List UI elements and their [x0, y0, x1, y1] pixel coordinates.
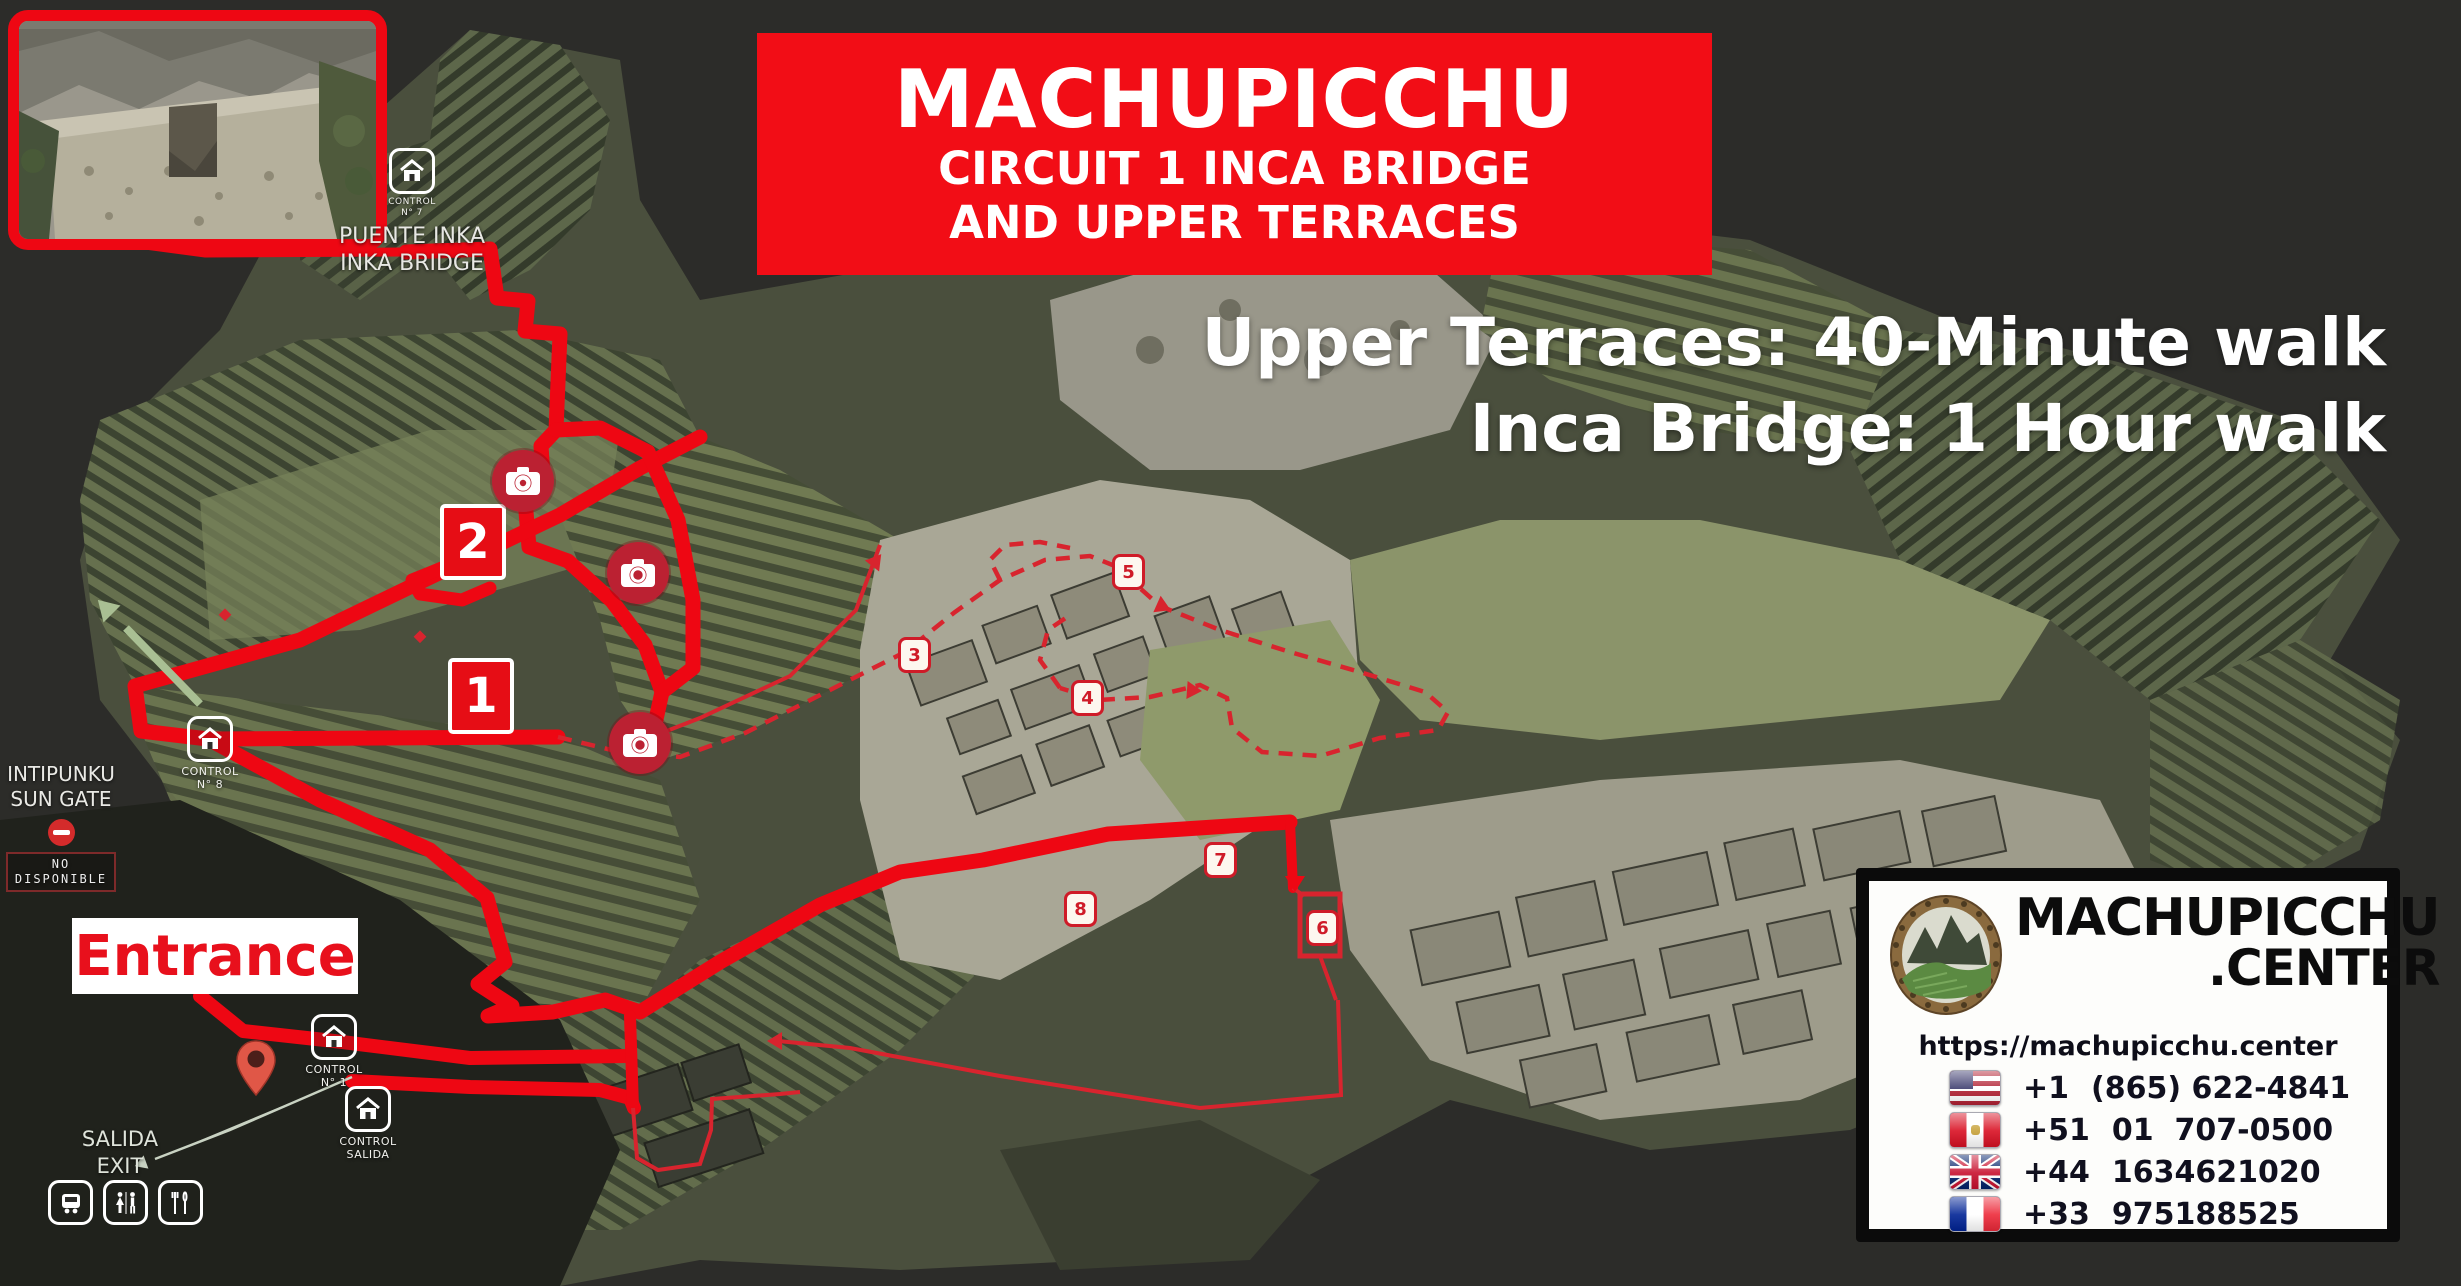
house-icon: [311, 1014, 357, 1060]
exit-label: SALIDA EXIT: [70, 1126, 170, 1181]
bridge-name-en: INKA BRIDGE: [339, 250, 485, 278]
control-label: CONTROL: [339, 1135, 396, 1148]
sun-gate-name-es: INTIPUNKU: [6, 762, 116, 787]
phone-list: +1 (865) 622-4841 +51 01 707-0500: [1949, 1070, 2369, 1232]
france-flag-icon: [1949, 1196, 2001, 1232]
map-subtitle-line2: AND UPPER TERRACES: [949, 197, 1520, 249]
exit-label-es: SALIDA: [70, 1126, 170, 1153]
house-icon: [389, 148, 435, 194]
camera-icon: [492, 450, 554, 512]
phone-france[interactable]: +33 975188525: [1949, 1196, 2369, 1232]
control-station-7: CONTROL N° 7 PUENTE INKA INKA BRIDGE: [332, 148, 492, 278]
title-banner: MACHUPICCHU CIRCUIT 1 INCA BRIDGE AND UP…: [757, 33, 1712, 275]
stop4-spur-dashed: [1040, 615, 1070, 688]
lower-terrace-return-line: [778, 1000, 1341, 1108]
phone-number: 1634621020: [2112, 1155, 2321, 1190]
camera-icon: [609, 712, 671, 774]
map-stop-5: 5: [1112, 554, 1145, 590]
entrance-access-path: [214, 742, 1290, 1016]
map-stop-3: 3: [898, 637, 931, 673]
entrance-connector: [630, 1016, 633, 1108]
contact-card: MACHUPICCHU .CENTER https://machupicchu.…: [1856, 868, 2400, 1242]
phone-uk[interactable]: +44 1634621020: [1949, 1154, 2369, 1190]
phone-number: 01 707-0500: [2112, 1113, 2333, 1148]
facilities-row: [48, 1180, 203, 1225]
house-icon: [187, 716, 233, 762]
phone-prefix: +51: [2023, 1113, 2090, 1148]
map-stop-8: 8: [1064, 891, 1097, 927]
sun-gate-block: INTIPUNKU SUN GATE NO DISPONIBLE: [6, 762, 116, 892]
control-exit-label: SALIDA: [347, 1148, 390, 1161]
entrance-label-box: Entrance: [72, 918, 358, 994]
exit-building-line: [633, 1092, 800, 1170]
no-entry-icon: [48, 819, 75, 846]
control-label: CONTROL: [388, 197, 435, 208]
brand-name-line1: MACHUPICCHU: [2015, 893, 2439, 944]
entrance-label: Entrance: [74, 924, 355, 989]
sun-gate-name-en: SUN GATE: [6, 787, 116, 812]
circuit-badge-2: 2: [440, 504, 506, 580]
machupicchu-circuit-map: MACHUPICCHU CIRCUIT 1 INCA BRIDGE AND UP…: [0, 0, 2461, 1286]
map-stop-7: 7: [1204, 842, 1237, 878]
phone-usa[interactable]: +1 (865) 622-4841: [1949, 1070, 2369, 1106]
peru-flag-icon: [1949, 1112, 2001, 1148]
website-url[interactable]: https://machupicchu.center: [1887, 1031, 2369, 1062]
control-station-8: CONTROL N° 8: [170, 716, 250, 791]
brand-logo: [1887, 893, 2005, 1017]
bus-icon: [48, 1180, 93, 1225]
phone-number: (865) 622-4841: [2091, 1071, 2350, 1106]
uk-flag-icon: [1949, 1154, 2001, 1190]
control-label: CONTROL: [305, 1063, 362, 1076]
control-number: N° 8: [197, 778, 223, 791]
phone-prefix: +44: [2023, 1155, 2090, 1190]
map-subtitle-line1: CIRCUIT 1 INCA BRIDGE: [938, 143, 1531, 195]
camera-icon: [607, 542, 669, 604]
map-stop-6: 6: [1306, 910, 1339, 946]
control-label: CONTROL: [181, 765, 238, 778]
restroom-icon: [103, 1180, 148, 1225]
control-station-1: CONTROL N° 1: [294, 1014, 374, 1089]
bridge-name-es: PUENTE INKA: [339, 223, 485, 251]
map-title: MACHUPICCHU: [894, 59, 1575, 141]
inca-bridge-photo: [8, 10, 387, 250]
phone-prefix: +1: [2023, 1071, 2069, 1106]
inca-bridge-time: Inca Bridge: 1 Hour walk: [1202, 386, 2386, 472]
map-stop-4: 4: [1071, 680, 1104, 716]
circuit-badge-1: 1: [448, 658, 514, 734]
exit-label-en: EXIT: [70, 1153, 170, 1180]
house-icon: [345, 1086, 391, 1132]
status-badge: NO DISPONIBLE: [6, 852, 116, 892]
control-number: N° 7: [401, 208, 423, 219]
restaurant-icon: [158, 1180, 203, 1225]
upper-terraces-time: Upper Terraces: 40-Minute walk: [1202, 300, 2386, 386]
phone-number: 975188525: [2112, 1197, 2300, 1232]
phone-prefix: +33: [2023, 1197, 2090, 1232]
brand-name-line2: .CENTER: [2015, 944, 2439, 993]
usa-flag-icon: [1949, 1070, 2001, 1106]
phone-peru[interactable]: +51 01 707-0500: [1949, 1112, 2369, 1148]
walking-times: Upper Terraces: 40-Minute walk Inca Brid…: [1202, 300, 2386, 472]
control-station-salida: CONTROL SALIDA: [328, 1086, 408, 1161]
map-pin-icon: [236, 1040, 276, 1096]
